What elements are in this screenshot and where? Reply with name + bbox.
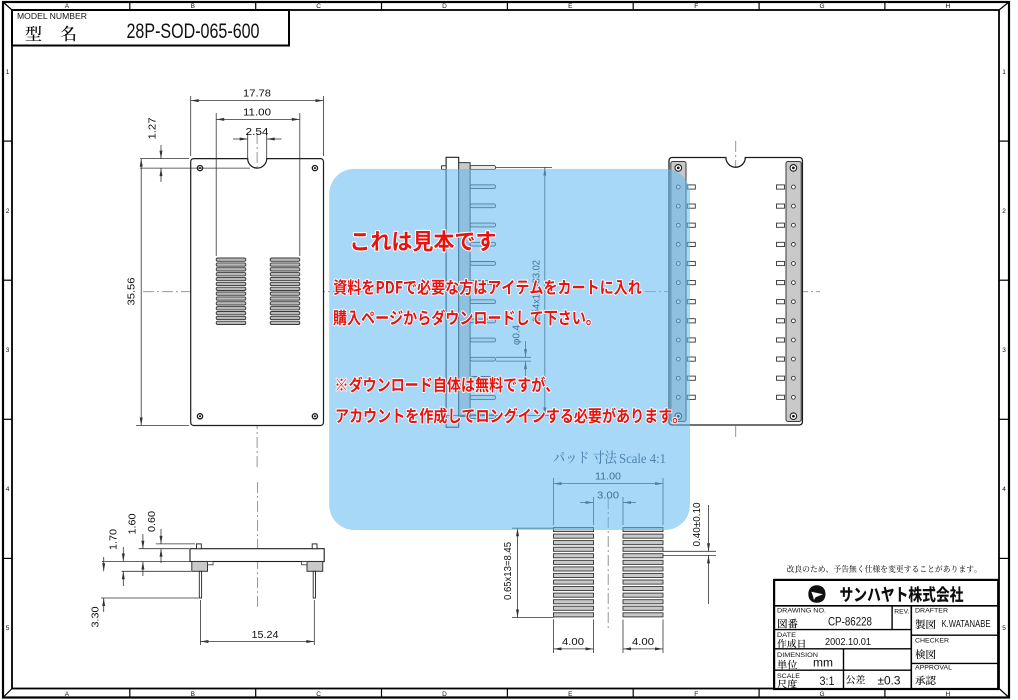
svg-text:1.60: 1.60 (127, 513, 138, 534)
svg-text:DATE: DATE (777, 632, 796, 639)
svg-text:H: H (946, 691, 951, 698)
svg-text:G: G (819, 3, 824, 10)
svg-text:K.WATANABE: K.WATANABE (942, 618, 991, 630)
svg-text:D: D (442, 3, 447, 10)
svg-text:4.00: 4.00 (562, 637, 584, 648)
svg-text:H: H (946, 3, 951, 10)
svg-text:DRAFTER: DRAFTER (915, 608, 948, 615)
svg-text:0.65x13=8.45: 0.65x13=8.45 (503, 542, 514, 600)
svg-text:3: 3 (6, 347, 10, 354)
svg-text:2002.10.01: 2002.10.01 (825, 636, 871, 648)
svg-text:4.00: 4.00 (632, 637, 654, 648)
svg-text:B: B (191, 691, 195, 698)
svg-text:0.40±0.10: 0.40±0.10 (692, 502, 703, 546)
svg-text:15.24: 15.24 (252, 630, 279, 641)
svg-text:A: A (65, 691, 70, 698)
svg-text:F: F (694, 691, 698, 698)
svg-text:2: 2 (6, 208, 10, 215)
svg-text:MODEL NUMBER: MODEL NUMBER (17, 12, 87, 21)
svg-text:APPROVAL: APPROVAL (915, 665, 952, 672)
svg-text:SCALE: SCALE (777, 673, 800, 680)
svg-text:5: 5 (6, 625, 10, 632)
svg-text:28P-SOD-065-600: 28P-SOD-065-600 (127, 19, 260, 43)
svg-text:G: G (819, 691, 824, 698)
svg-text:2: 2 (1002, 208, 1006, 215)
svg-text:1.70: 1.70 (108, 529, 119, 550)
svg-text:mm: mm (813, 658, 833, 670)
svg-text:17.78: 17.78 (243, 89, 271, 100)
svg-text:1.27: 1.27 (148, 117, 159, 139)
svg-text:E: E (568, 3, 573, 10)
svg-text:±0.3: ±0.3 (878, 676, 901, 688)
svg-text:REV.: REV. (894, 609, 909, 616)
svg-text:1: 1 (1002, 69, 1006, 76)
svg-text:4: 4 (6, 486, 10, 493)
svg-text:3: 3 (1002, 347, 1006, 354)
svg-text:1: 1 (6, 69, 10, 76)
svg-text:F: F (694, 3, 698, 10)
svg-text:5: 5 (1002, 625, 1006, 632)
svg-text:C: C (316, 3, 321, 10)
svg-text:4: 4 (1002, 486, 1006, 493)
svg-text:11.00: 11.00 (243, 108, 271, 119)
svg-text:3.30: 3.30 (91, 606, 102, 627)
svg-text:35.56: 35.56 (127, 277, 138, 305)
svg-text:D: D (442, 691, 447, 698)
svg-text:CHECKER: CHECKER (915, 638, 949, 645)
svg-text:3:1: 3:1 (820, 676, 835, 688)
svg-text:C: C (316, 691, 321, 698)
svg-text:0.60: 0.60 (147, 511, 158, 532)
svg-text:E: E (568, 691, 573, 698)
svg-text:CP-86228: CP-86228 (828, 617, 872, 629)
svg-text:2.54: 2.54 (246, 127, 270, 138)
svg-text:DRAWING NO.: DRAWING NO. (777, 608, 826, 615)
